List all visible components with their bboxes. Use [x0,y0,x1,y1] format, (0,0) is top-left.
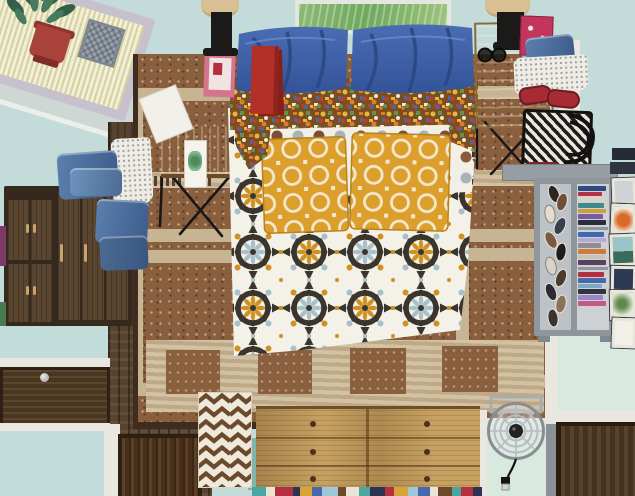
book-spine [578,249,606,254]
leaning-frame [612,178,635,207]
dresser [256,406,480,493]
leaning-box [612,148,635,160]
book-spine [578,272,604,277]
shelf-foot [538,336,550,342]
book-spine [578,209,606,213]
pink-book-label [208,58,231,91]
book-spine [578,238,606,242]
floor-fan [483,389,551,493]
clothing-sliver [0,302,6,326]
wardrobe-handle [60,244,63,262]
door-bottom-right [556,422,635,496]
pink-book-figure [213,63,222,75]
door-vertical [118,434,202,496]
leaning-frame [611,266,635,292]
book-spine [578,192,602,196]
wardrobe-handle [84,244,87,262]
door-knob [40,373,49,382]
floor-panel [0,431,104,496]
mustard-pillow-left [261,137,348,234]
book-spine [578,284,602,288]
floor-trim [0,358,110,367]
drawer-knob [424,449,430,455]
wardrobe-handle [33,224,36,233]
left-lamp-base [203,48,238,56]
shelf-shoes [538,182,574,332]
colorful-floor-items [252,487,482,496]
drawer-knob [424,421,430,427]
sunglasses [476,44,508,66]
book-spine [578,301,606,306]
book-spine [578,295,603,300]
shelf-divider [578,267,608,270]
book-spine [578,214,603,219]
wardrobe-handle [26,286,29,295]
chevron-rug [198,392,252,488]
book-spine [578,220,606,225]
shelf-book-column [577,184,609,330]
book-spine [578,232,604,237]
greeting-card [184,140,207,188]
card-art [188,151,202,171]
drawer-knob [310,421,316,427]
blue-pillow-right [351,24,474,93]
dresser-divider [366,409,369,491]
wardrobe-handle [33,286,36,295]
leaning-frame [610,204,635,235]
leaning-frame [610,290,635,320]
wardrobe-handle [26,224,29,233]
mustard-pillow-right [350,133,450,232]
left-lamp-stem [211,12,232,52]
book-spine [578,197,606,202]
leaning-frame [609,234,635,267]
shelf-divider [578,227,608,230]
leaning-frame [611,318,635,349]
book-spine [578,255,605,259]
drawer-seam [256,437,480,439]
denim-pile [99,235,148,271]
leaning-box [610,162,635,174]
book-spine [578,186,606,191]
drawer-knob [424,476,430,482]
book-spine [578,203,604,208]
drawer-knob [310,476,316,482]
book-spine [578,278,606,283]
rug-square [166,350,220,394]
drawer-seam [256,465,480,467]
bedroom-painting [0,0,635,496]
denim-pile [70,168,122,196]
door-bottom-left [0,367,110,429]
pink-book [203,51,236,97]
book-spine [578,243,601,248]
floor-panel [0,330,108,358]
drawer-knob [310,449,316,455]
clothing-sliver [0,226,6,266]
book-spine [578,289,606,294]
book-spine [578,260,606,265]
red-book [250,46,279,115]
floor-trim [0,423,110,431]
shelf-foot [600,336,612,342]
